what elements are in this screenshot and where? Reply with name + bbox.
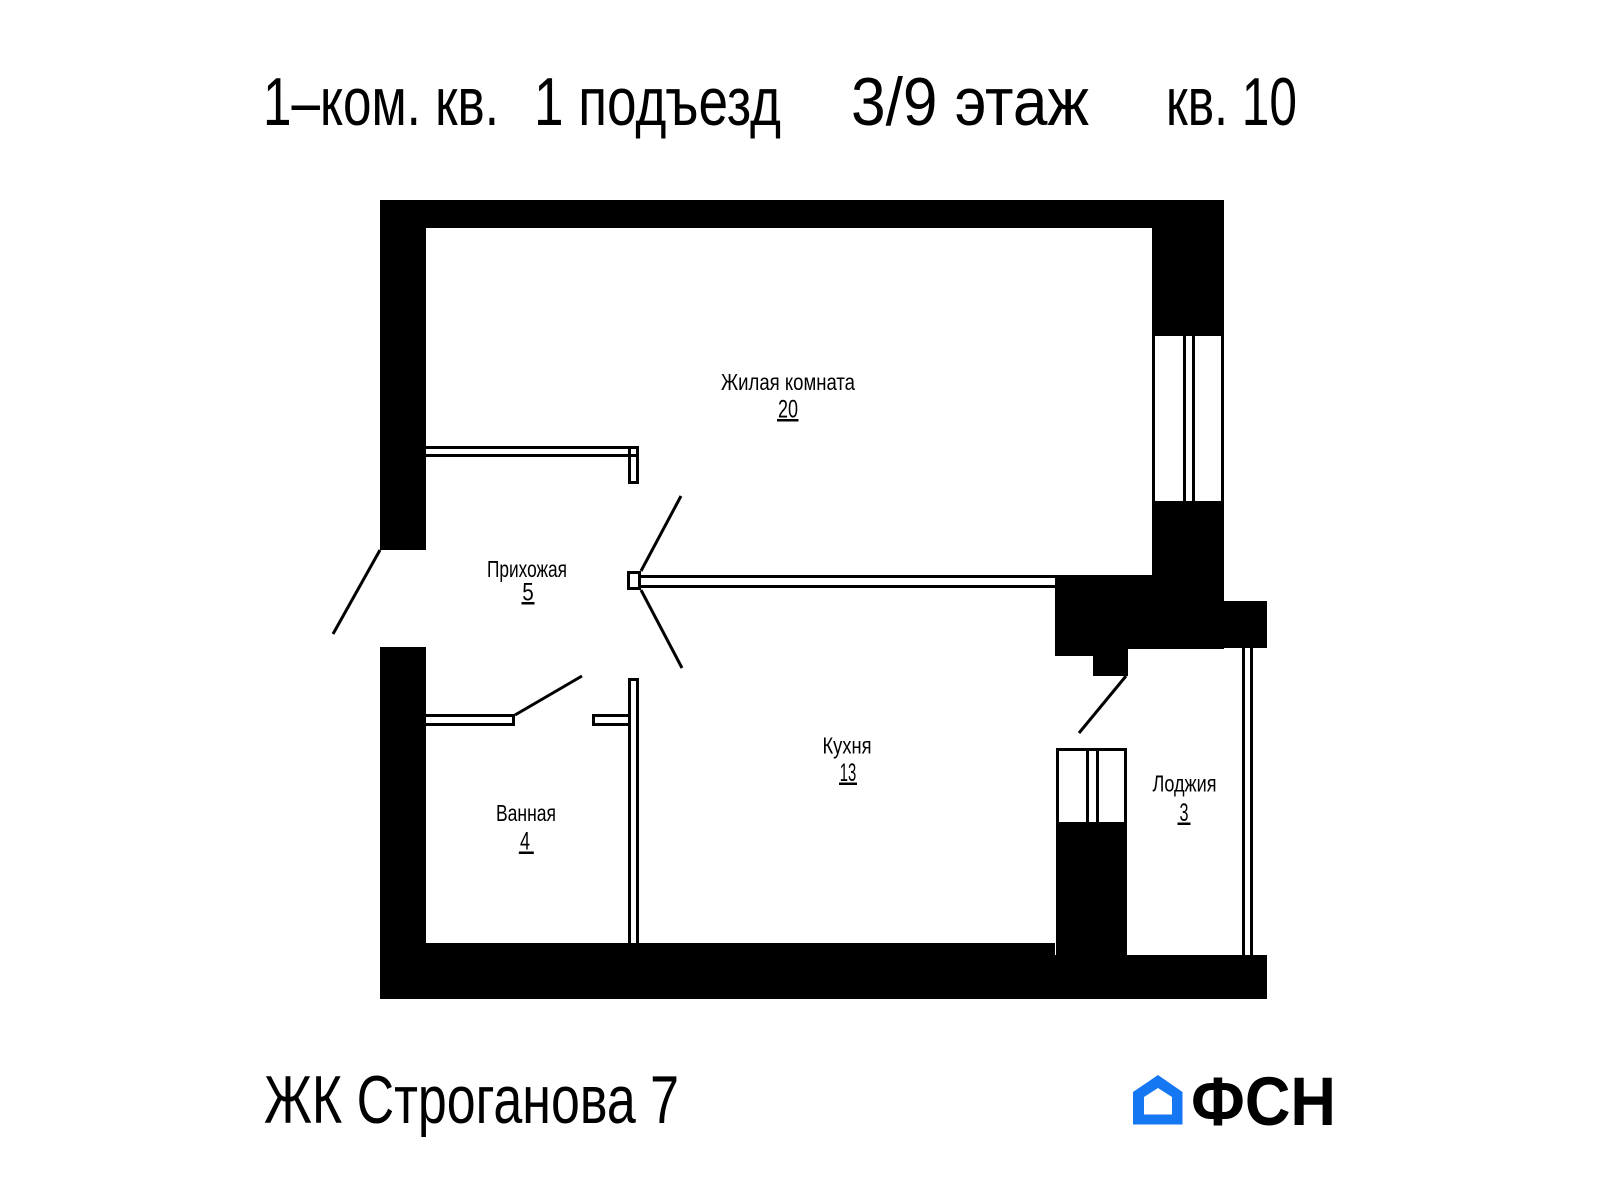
svg-text:1–ком. кв.: 1–ком. кв. [263,64,499,140]
svg-text:ЖК Строганова 7: ЖК Строганова 7 [264,1062,679,1138]
svg-text:Лоджия: Лоджия [1153,771,1217,797]
svg-text:4: 4 [520,828,530,856]
svg-text:Ванная: Ванная [496,800,556,826]
svg-text:Жилая комната: Жилая комната [721,369,856,395]
svg-text:ФСН: ФСН [1191,1063,1336,1140]
svg-text:3/9 этаж: 3/9 этаж [851,64,1089,140]
svg-text:Кухня: Кухня [823,733,872,759]
svg-text:кв. 10: кв. 10 [1166,64,1297,140]
svg-text:1 подъезд: 1 подъезд [534,64,781,140]
